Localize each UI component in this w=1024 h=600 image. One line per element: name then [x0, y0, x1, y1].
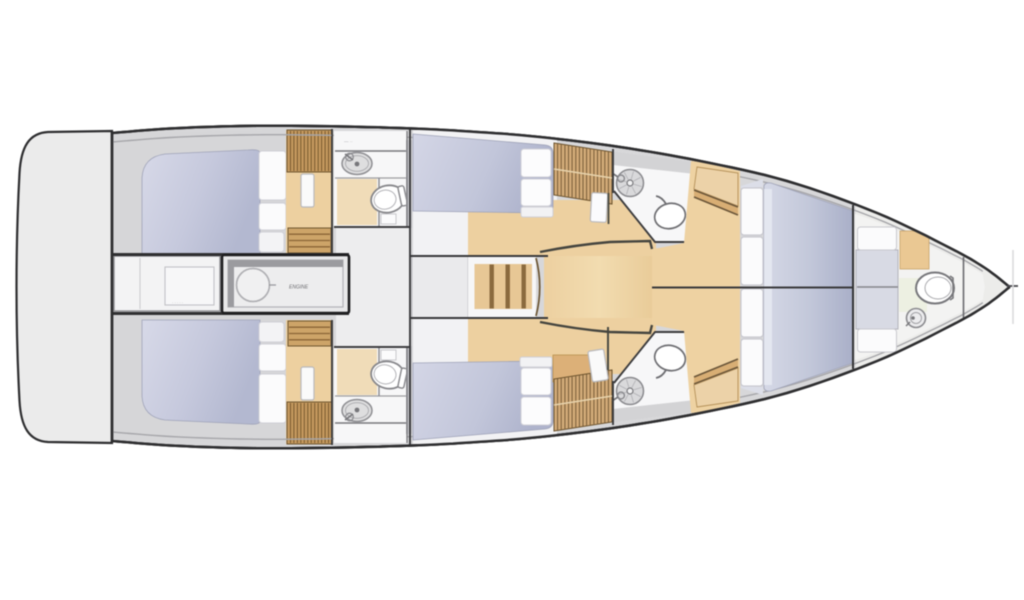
- svg-text:· · · · ·: · · · · ·: [172, 300, 183, 305]
- svg-text:ENGINE: ENGINE: [289, 285, 309, 291]
- svg-text:— ··: — ··: [344, 139, 353, 144]
